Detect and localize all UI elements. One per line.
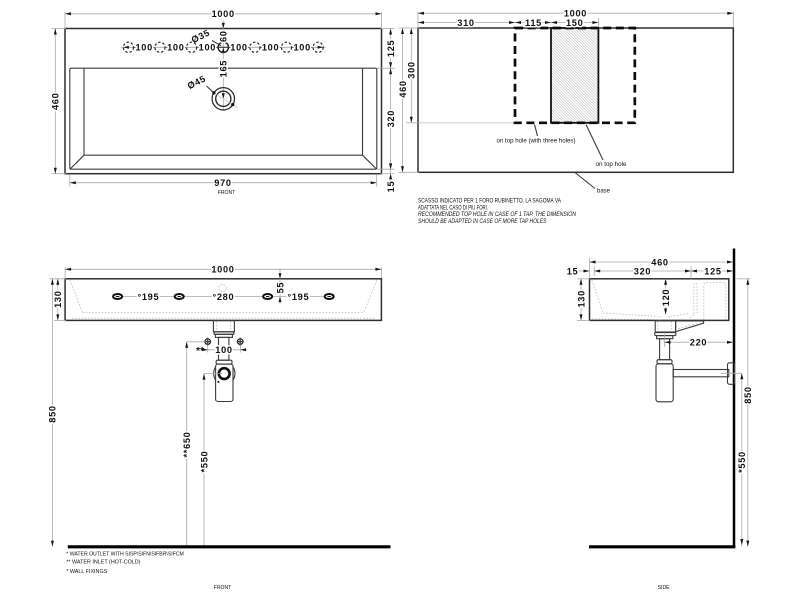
svg-text:100: 100 bbox=[215, 345, 232, 355]
svg-text:120: 120 bbox=[661, 289, 671, 306]
svg-text:**: ** bbox=[196, 345, 205, 357]
svg-text:SCASSO INDICATO PER 1 FORO RUB: SCASSO INDICATO PER 1 FORO RUBINETTO. LA… bbox=[418, 199, 561, 205]
svg-text:°195: °195 bbox=[287, 292, 309, 302]
svg-text:FRONT: FRONT bbox=[214, 585, 232, 591]
svg-text:*550: *550 bbox=[737, 451, 747, 473]
svg-text:ADATTATA NEL CASO DI PIU FORI.: ADATTATA NEL CASO DI PIU FORI. bbox=[418, 205, 488, 211]
svg-text:300: 300 bbox=[407, 61, 417, 78]
svg-text:130: 130 bbox=[53, 290, 63, 307]
svg-text:°195: °195 bbox=[137, 292, 159, 302]
svg-text:SHOULD BE ADAPTED IN CASE OF M: SHOULD BE ADAPTED IN CASE OF MORE TAP HO… bbox=[418, 219, 547, 225]
svg-text:100: 100 bbox=[230, 43, 247, 53]
svg-text:970: 970 bbox=[214, 178, 231, 188]
svg-text:on top hole (with three holes): on top hole (with three holes) bbox=[497, 139, 576, 145]
svg-text:**650: **650 bbox=[182, 432, 192, 458]
svg-text:310: 310 bbox=[457, 18, 474, 28]
svg-text:165: 165 bbox=[219, 60, 229, 77]
svg-text:15: 15 bbox=[567, 266, 579, 276]
svg-text:115: 115 bbox=[525, 18, 542, 28]
svg-text:FRONT: FRONT bbox=[218, 190, 236, 196]
svg-text:15: 15 bbox=[386, 181, 396, 193]
svg-text:60: 60 bbox=[219, 30, 229, 42]
svg-text:100: 100 bbox=[293, 43, 310, 53]
svg-text:55: 55 bbox=[275, 282, 285, 294]
svg-text:1000: 1000 bbox=[211, 265, 234, 275]
svg-text:850: 850 bbox=[743, 386, 753, 403]
svg-text:base: base bbox=[597, 189, 611, 195]
svg-text:850: 850 bbox=[48, 405, 58, 422]
svg-text:100: 100 bbox=[167, 43, 184, 53]
svg-text:*550: *550 bbox=[199, 451, 209, 473]
svg-text:125: 125 bbox=[704, 266, 721, 276]
svg-text:** WATER INLET (HOT-COLD): ** WATER INLET (HOT-COLD) bbox=[66, 560, 140, 566]
svg-text:°280: °280 bbox=[212, 292, 234, 302]
svg-text:RECOMMENDED TOP HOLE IN CASE O: RECOMMENDED TOP HOLE IN CASE OF 1 TAP. T… bbox=[418, 212, 577, 218]
svg-text:125: 125 bbox=[386, 40, 396, 57]
svg-text:100: 100 bbox=[199, 43, 216, 53]
svg-text:SIDE: SIDE bbox=[658, 585, 670, 591]
svg-text:130: 130 bbox=[576, 290, 586, 307]
svg-text:100: 100 bbox=[262, 43, 279, 53]
svg-text:100: 100 bbox=[135, 43, 152, 53]
svg-text:220: 220 bbox=[690, 338, 707, 348]
svg-text:460: 460 bbox=[398, 80, 408, 97]
svg-text:150: 150 bbox=[566, 18, 583, 28]
svg-text:on top hole: on top hole bbox=[596, 162, 628, 168]
svg-text:1000: 1000 bbox=[212, 9, 235, 19]
svg-text:* WATER OUTLET WITH SISP\SIFN: * WATER OUTLET WITH SISP\SIFN\SIFBR\SIFC… bbox=[66, 552, 184, 558]
svg-text:* WALL FIXINGS: * WALL FIXINGS bbox=[66, 569, 107, 575]
svg-text:460: 460 bbox=[51, 93, 61, 110]
svg-text:320: 320 bbox=[386, 110, 396, 127]
svg-text:320: 320 bbox=[634, 266, 651, 276]
svg-text:460: 460 bbox=[651, 257, 668, 267]
